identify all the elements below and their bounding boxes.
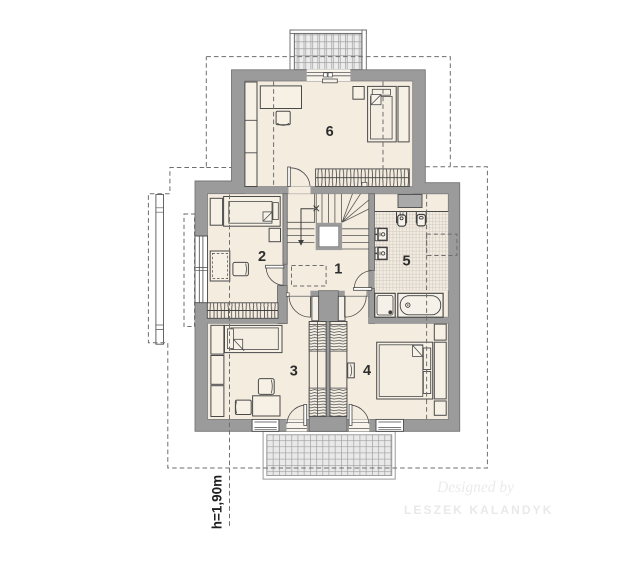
svg-text:3: 3 [290,363,298,379]
svg-text:2: 2 [258,249,266,265]
svg-text:4: 4 [363,363,371,379]
svg-text:Designed by: Designed by [436,479,514,496]
svg-text:5: 5 [403,254,411,270]
svg-text:1: 1 [334,261,342,277]
svg-text:LESZEK KALANDYK: LESZEK KALANDYK [404,503,554,517]
svg-text:6: 6 [326,124,334,140]
svg-text:h=1,90m: h=1,90m [210,475,225,529]
